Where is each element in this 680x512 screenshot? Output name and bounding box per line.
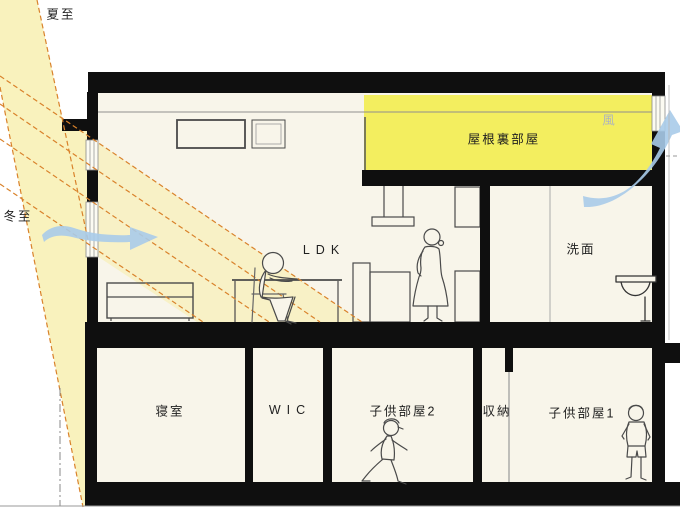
room-label-attic: 屋根裏部屋: [468, 129, 541, 148]
wind-label: 風: [602, 110, 616, 129]
winter-solstice-label: 冬至: [3, 206, 32, 225]
right-wall: [652, 131, 665, 482]
room-label-kids1: 子供部屋1: [549, 403, 616, 422]
wic-kids2-wall: [323, 348, 332, 482]
left-wall-upper: [87, 92, 98, 140]
room-label-storage: 収納: [482, 401, 511, 420]
room-label-ldk: LDK: [303, 243, 345, 257]
right-slab-edge: [665, 343, 680, 363]
bedroom-wic-wall: [245, 348, 253, 482]
kids2-storage-wall: [473, 348, 482, 482]
house-section-diagram: 夏至 冬至 風 屋根裏部屋 LDK 洗面 寝室 WIC 子供部屋2 収納 子供部…: [0, 0, 680, 512]
ground-left-wall: [85, 348, 97, 482]
left-wall-mid: [87, 170, 98, 202]
storage-header-wall: [505, 348, 513, 372]
room-label-kids2: 子供部屋2: [370, 401, 437, 420]
foundation-slab: [85, 482, 680, 506]
summer-solstice-label: 夏至: [46, 4, 75, 23]
ldk-washroom-wall: [480, 186, 490, 322]
room-label-washroom: 洗面: [566, 239, 595, 258]
room-label-wic: WIC: [269, 403, 311, 417]
left-upper-window: [86, 140, 98, 170]
head: [384, 421, 399, 436]
left-wall-lower: [87, 257, 98, 322]
right-wall-upper: [652, 92, 665, 96]
head: [263, 253, 284, 274]
room-label-bedroom: 寝室: [155, 401, 184, 420]
roof-slab: [88, 72, 665, 93]
middle-floor-slab: [85, 322, 665, 348]
attic-floor-slab: [362, 170, 665, 186]
head: [424, 229, 440, 245]
